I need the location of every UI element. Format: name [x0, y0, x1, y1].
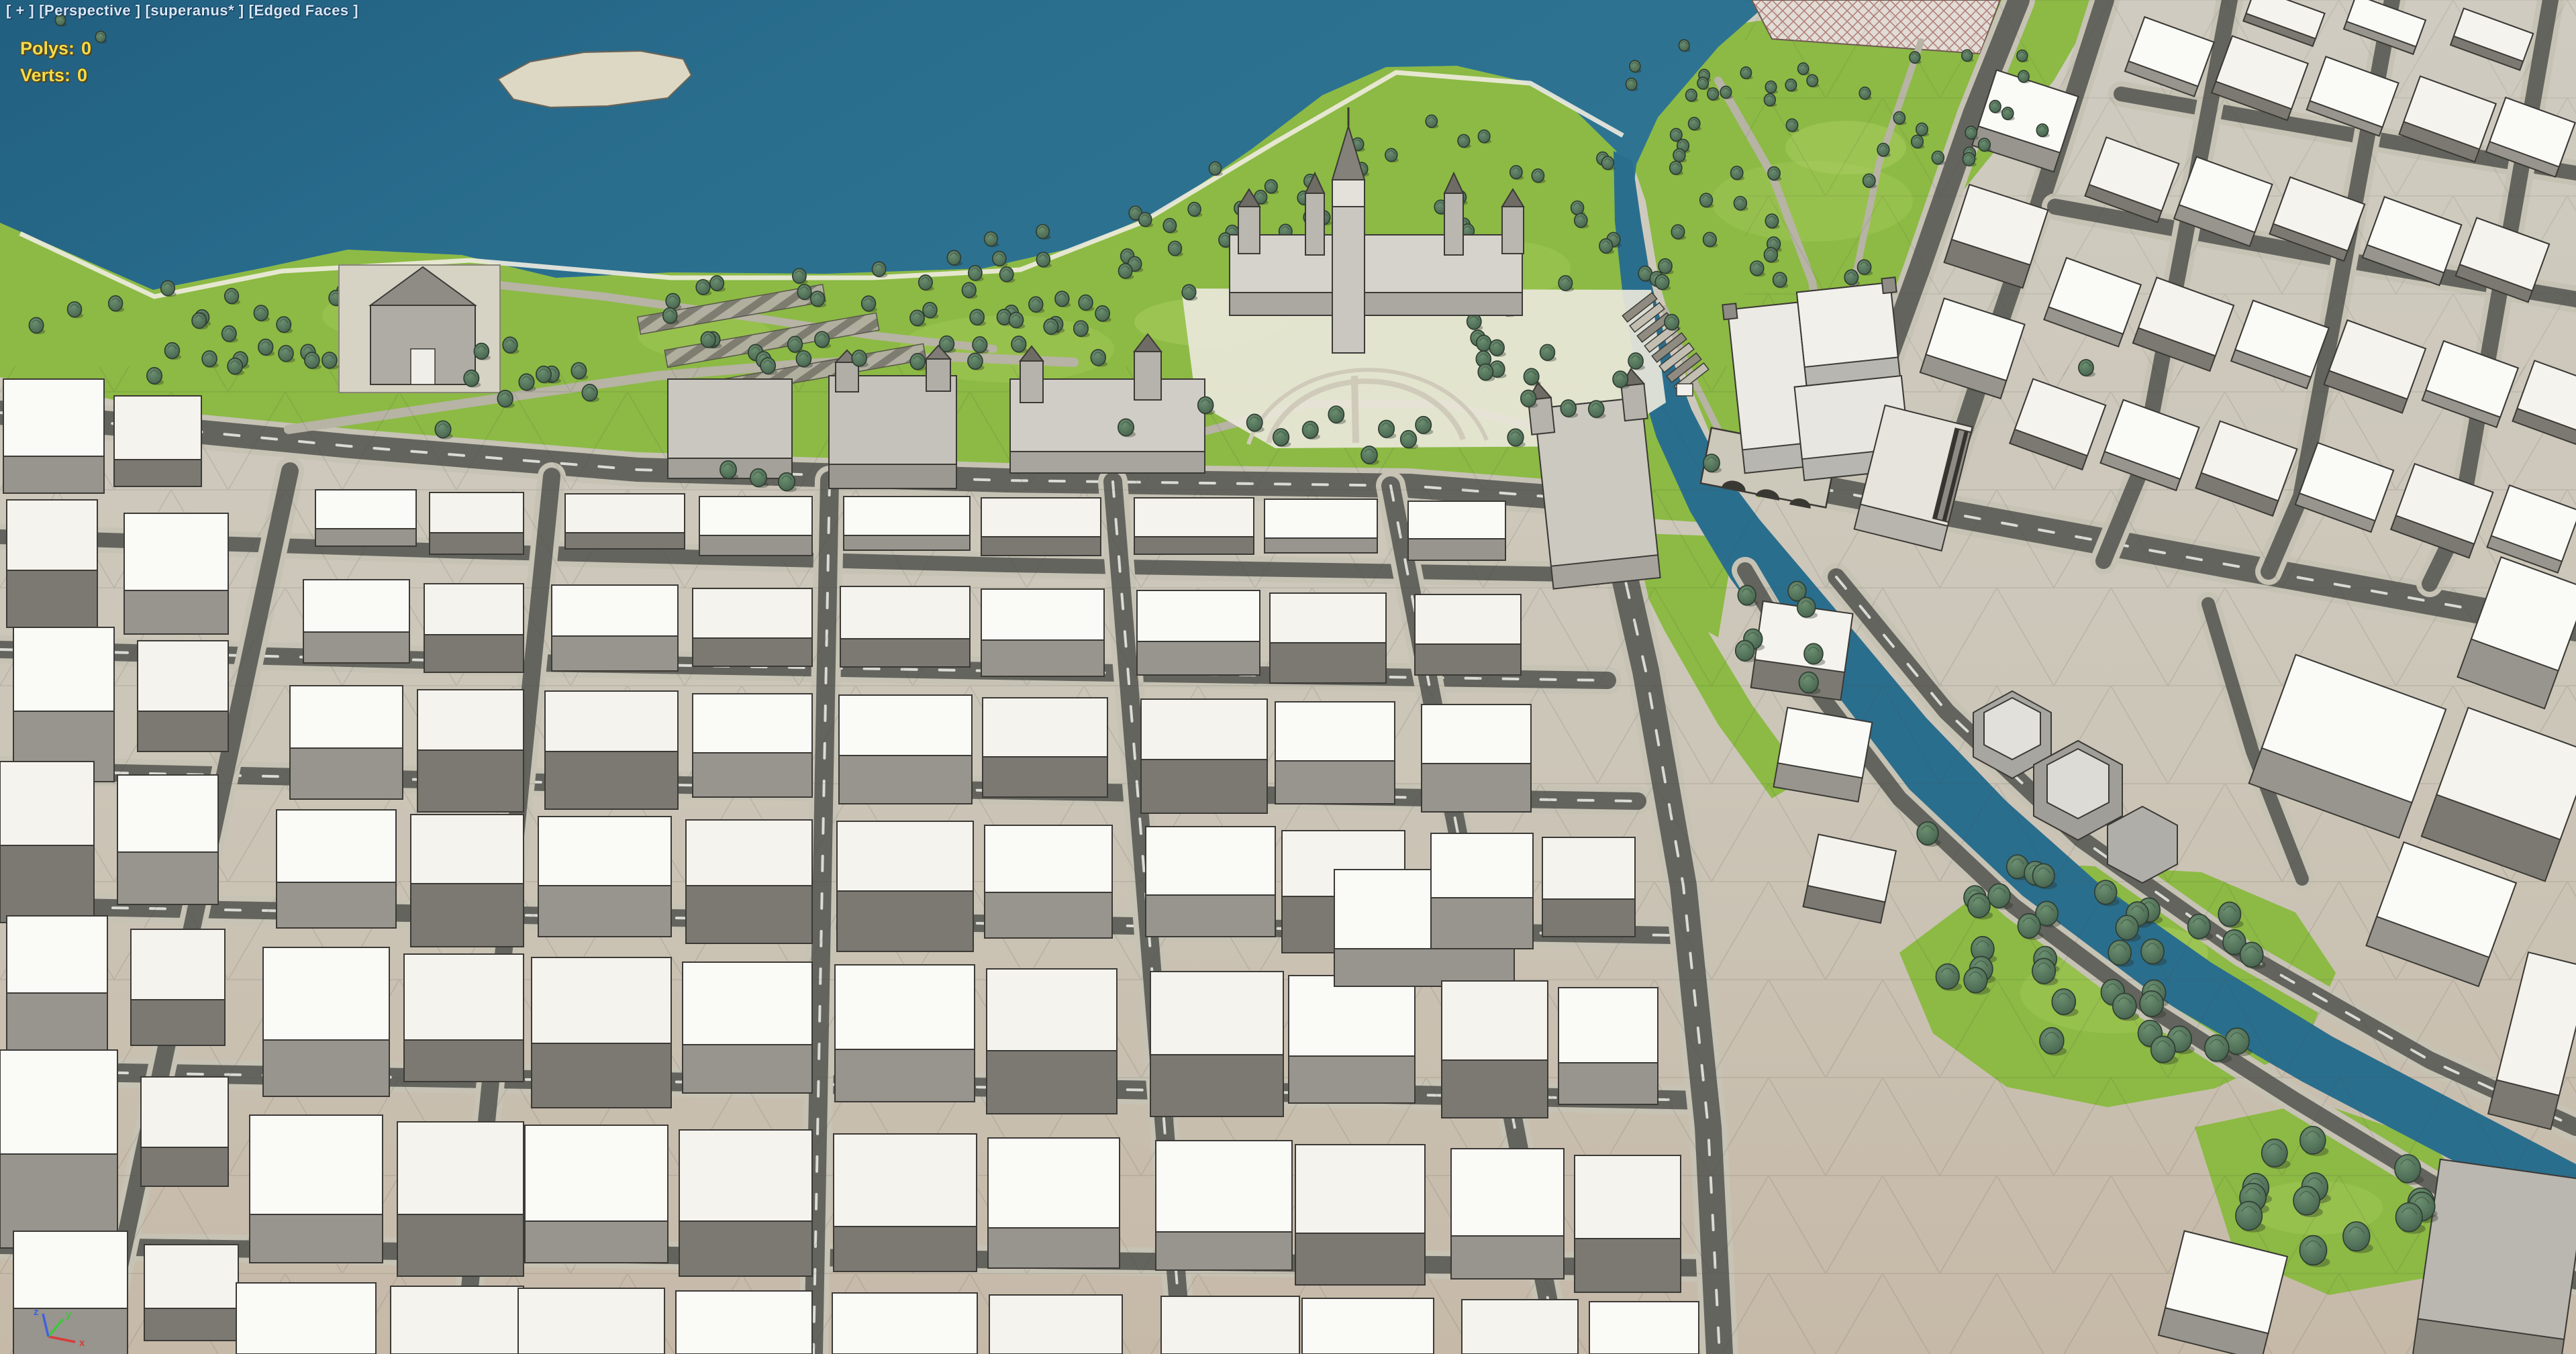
- axis-y-label: y: [66, 1309, 72, 1320]
- building: [411, 815, 524, 947]
- polys-stat: Polys:0: [20, 35, 91, 62]
- building: [1134, 498, 1254, 554]
- viewport-menu-toggle[interactable]: [ + ]: [6, 2, 34, 19]
- building: [1141, 699, 1267, 813]
- building: [2412, 1159, 2576, 1354]
- building: [424, 584, 524, 672]
- building: [263, 947, 389, 1096]
- building: [693, 694, 812, 797]
- building: [840, 586, 970, 667]
- building: [1161, 1296, 1299, 1354]
- building: [1302, 1298, 1434, 1354]
- building: [1415, 594, 1521, 675]
- building: [1270, 593, 1386, 683]
- building: [693, 588, 812, 666]
- building: [0, 762, 94, 923]
- building: [518, 1288, 664, 1354]
- building: [676, 1291, 812, 1354]
- building: [683, 962, 812, 1093]
- building: [981, 589, 1104, 676]
- building: [1558, 988, 1658, 1104]
- viewport-shading-label[interactable]: [Edged Faces ]: [249, 2, 358, 19]
- building: [988, 1138, 1120, 1268]
- building: [1442, 981, 1548, 1118]
- viewport-object-name[interactable]: [superanus* ]: [146, 2, 244, 19]
- building: [1462, 1300, 1578, 1354]
- building: [679, 1130, 812, 1276]
- building: [277, 810, 396, 928]
- building: [303, 580, 409, 663]
- building: [7, 500, 97, 627]
- building: [1275, 702, 1395, 804]
- building: [985, 825, 1112, 938]
- building: [1451, 1149, 1564, 1279]
- building: [3, 379, 104, 493]
- building: [1575, 1155, 1681, 1292]
- building: [545, 691, 678, 809]
- building: [250, 1115, 383, 1263]
- building: [839, 695, 972, 804]
- building: [1289, 976, 1415, 1103]
- building: [987, 969, 1117, 1114]
- building: [1422, 705, 1531, 812]
- building: [131, 929, 225, 1045]
- building: [315, 490, 416, 546]
- building: [1542, 837, 1635, 937]
- lock-house: [1677, 384, 1693, 396]
- building: [844, 497, 970, 550]
- city-scene-render: [0, 0, 2576, 1354]
- building: [144, 1245, 238, 1341]
- building: [1431, 833, 1533, 949]
- viewport-statistics: Polys:0 Verts:0: [20, 35, 91, 89]
- building: [141, 1077, 228, 1186]
- building: [983, 698, 1107, 797]
- building: [1295, 1145, 1425, 1285]
- building: [525, 1125, 668, 1263]
- building: [837, 821, 973, 951]
- building: [699, 497, 812, 556]
- building: [1156, 1141, 1292, 1270]
- building: [236, 1283, 376, 1354]
- building: [1408, 501, 1505, 560]
- building: [1589, 1302, 1699, 1354]
- verts-stat: Verts:0: [20, 62, 91, 89]
- building: [290, 686, 403, 799]
- viewport-pov-label[interactable]: [Perspective ]: [39, 2, 140, 19]
- world-axis-tripod: x y z: [15, 1307, 95, 1350]
- building: [989, 1295, 1122, 1354]
- building: [138, 641, 228, 751]
- building: [538, 817, 671, 937]
- building: [430, 492, 524, 554]
- building: [13, 627, 114, 782]
- building: [1265, 499, 1377, 553]
- building: [1803, 835, 1896, 923]
- axis-z-label: z: [34, 1307, 39, 1318]
- building: [552, 585, 678, 671]
- building: [0, 1050, 117, 1248]
- axis-x-label: x: [79, 1337, 85, 1349]
- building: [532, 957, 671, 1108]
- building: [404, 954, 524, 1082]
- building: [124, 513, 228, 634]
- building: [117, 775, 218, 904]
- building: [834, 1134, 977, 1271]
- building: [835, 965, 975, 1102]
- building: [686, 820, 812, 943]
- 3d-viewport[interactable]: [ + ][Perspective ][superanus* ][Edged F…: [0, 0, 2576, 1354]
- building: [114, 396, 201, 486]
- building: [1773, 708, 1872, 802]
- viewport-label: [ + ][Perspective ][superanus* ][Edged F…: [6, 2, 363, 19]
- building: [981, 498, 1101, 556]
- building: [1146, 827, 1275, 937]
- building: [7, 916, 107, 1057]
- building: [565, 494, 685, 549]
- building: [1150, 972, 1283, 1116]
- building: [397, 1122, 524, 1276]
- building: [832, 1293, 977, 1354]
- building: [417, 690, 524, 812]
- building: [1137, 590, 1260, 675]
- building: [391, 1286, 524, 1354]
